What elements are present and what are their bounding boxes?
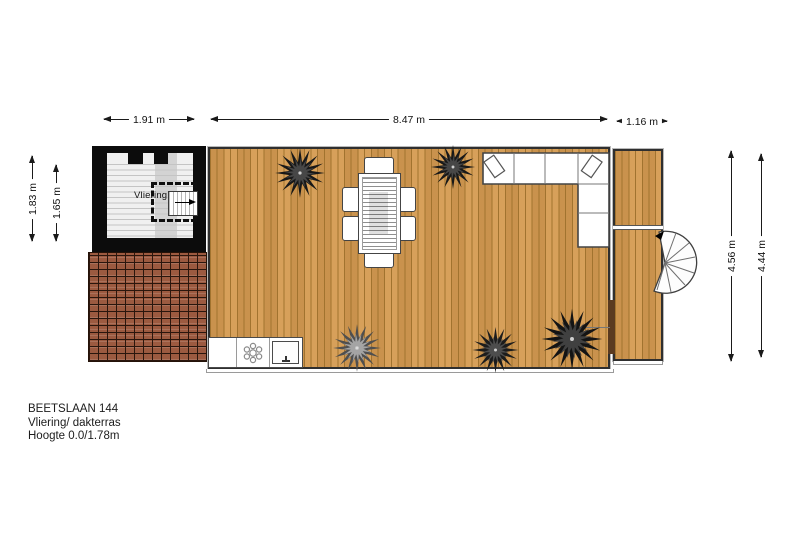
plan-address: BEETSLAAN 144 — [28, 403, 121, 417]
outdoor-kitchen-counter — [208, 337, 303, 368]
arrow-down-icon — [29, 234, 35, 242]
vliering-room: Vliering — [92, 146, 206, 252]
dimension-left-inner: 1.65 m — [50, 164, 64, 242]
plan-floor-label: Vliering/ dakterras — [28, 417, 121, 431]
arrow-right-icon — [187, 116, 195, 122]
arrow-left-icon — [210, 116, 218, 122]
counter-divider — [236, 338, 237, 367]
tap-icon — [282, 360, 290, 362]
dimension-label: 1.91 m — [129, 114, 169, 126]
plant — [421, 143, 485, 191]
stair-direction-line — [175, 202, 190, 203]
plant — [268, 146, 332, 200]
arrow-left-icon — [103, 116, 111, 122]
arrow-down-icon — [53, 234, 59, 242]
plan-height-label: Hoogte 0.0/1.78m — [28, 430, 121, 444]
sink — [272, 341, 299, 364]
dimension-label: 1.16 m — [622, 116, 662, 128]
floorplan-canvas: 1.91 m 8.47 m 1.16 m 1.83 m 1.65 m 4.56 … — [0, 0, 792, 560]
dimension-label: 1.83 m — [27, 178, 39, 218]
dimension-top-left: 1.91 m — [103, 113, 195, 127]
dimension-left-outer: 1.83 m — [26, 155, 40, 242]
dimension-label: 1.65 m — [51, 183, 63, 223]
wall-stub — [154, 152, 168, 164]
wall-stub — [128, 152, 143, 164]
arrow-right-icon — [600, 116, 608, 122]
arrow-up-icon — [758, 153, 764, 161]
dimension-label: 4.44 m — [756, 235, 768, 275]
burner-icon — [240, 341, 266, 365]
dimension-top-right: 1.16 m — [616, 115, 668, 129]
dimension-right-inner: 4.44 m — [755, 153, 769, 358]
dimension-label: 4.56 m — [726, 236, 738, 276]
arrow-up-icon — [29, 155, 35, 163]
tiled-roof — [88, 252, 207, 362]
stair-direction-arrow-icon — [189, 199, 196, 205]
table-center-shade — [369, 192, 388, 234]
dining-table — [358, 173, 401, 254]
plant — [468, 325, 523, 375]
arrow-up-icon — [53, 164, 59, 172]
arrow-down-icon — [758, 350, 764, 358]
arrow-down-icon — [728, 354, 734, 362]
loft-stair-symbol — [168, 191, 198, 216]
dimension-right-outer: 4.56 m — [725, 150, 739, 362]
plant — [326, 322, 388, 374]
side-deck-edge-fascia — [613, 361, 663, 365]
spiral-staircase — [640, 226, 704, 294]
dimension-label: 8.47 m — [389, 114, 429, 126]
dimension-top-main: 8.47 m — [210, 113, 608, 127]
plan-title-block: BEETSLAAN 144 Vliering/ dakterras Hoogte… — [28, 403, 121, 444]
counter-divider — [269, 338, 270, 367]
plant — [534, 306, 610, 372]
corner-sofa — [482, 150, 610, 250]
arrow-up-icon — [728, 150, 734, 158]
room-label: Vliering — [134, 190, 167, 201]
